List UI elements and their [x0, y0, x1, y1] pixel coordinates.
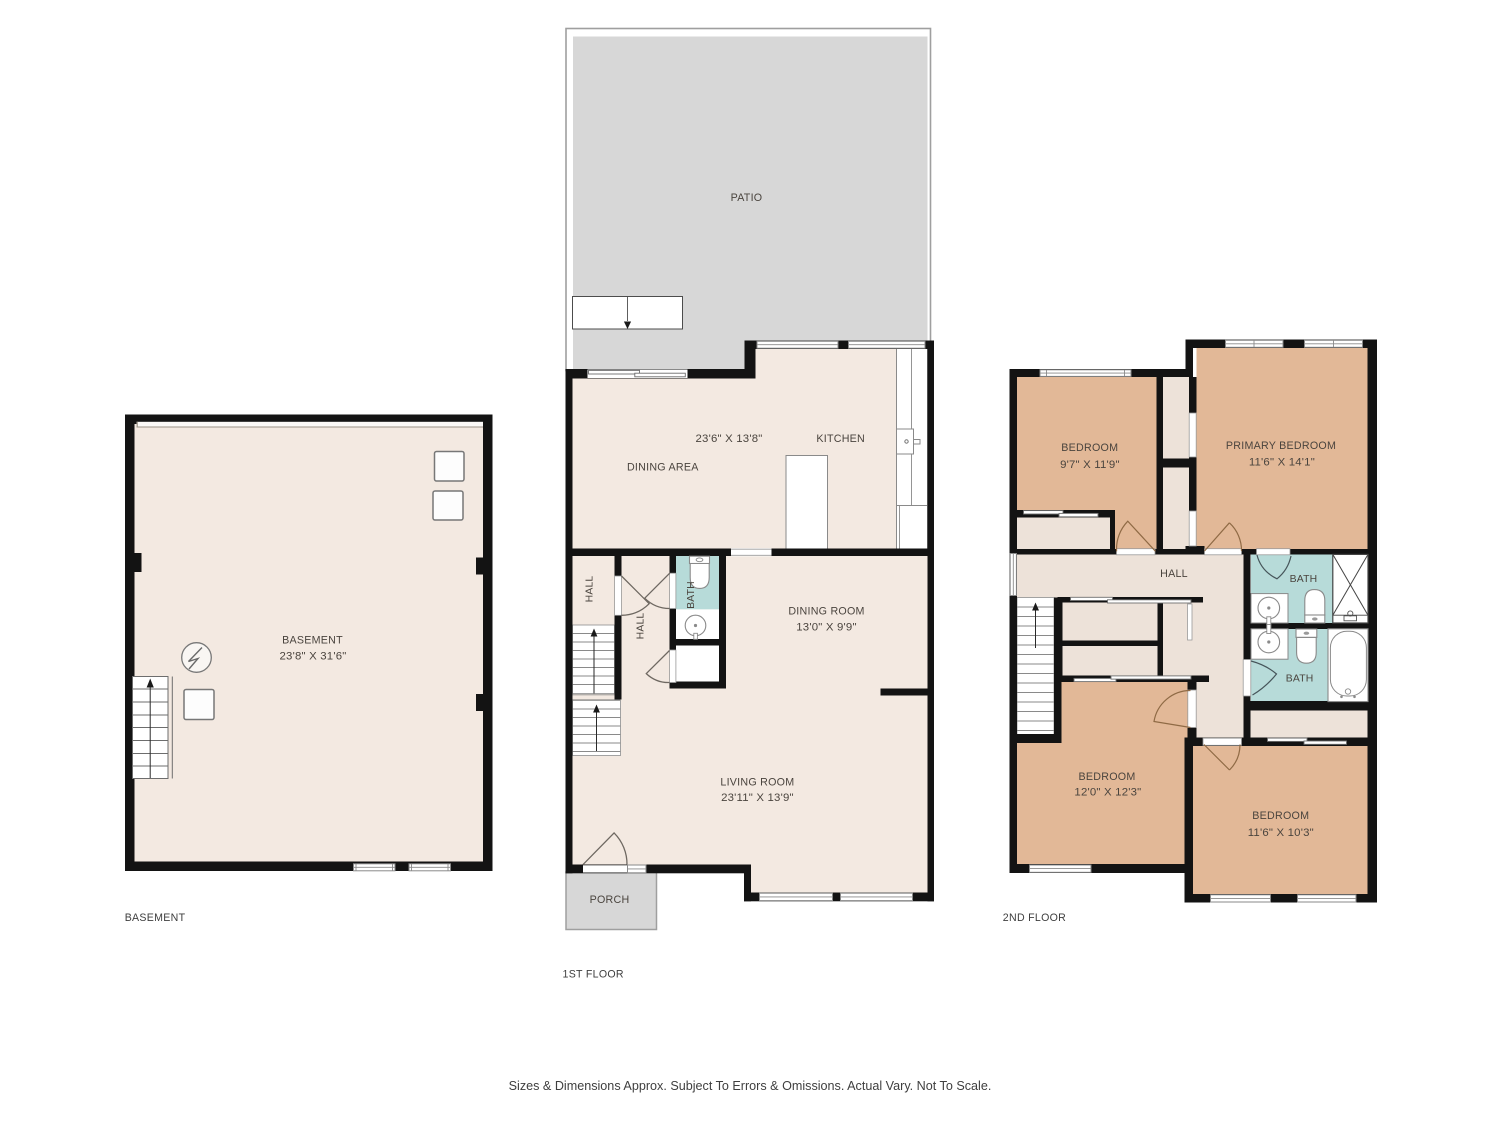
svg-text:BASEMENT: BASEMENT: [282, 634, 343, 646]
svg-text:BEDROOM: BEDROOM: [1252, 810, 1309, 822]
svg-text:HALL: HALL: [636, 613, 647, 640]
svg-text:12'0" X 12'3": 12'0" X 12'3": [1074, 787, 1141, 799]
svg-text:PORCH: PORCH: [590, 894, 630, 906]
svg-text:23'11" X 13'9": 23'11" X 13'9": [721, 792, 794, 804]
svg-text:23'8" X 31'6": 23'8" X 31'6": [280, 650, 347, 662]
svg-text:KITCHEN: KITCHEN: [816, 433, 865, 445]
svg-text:Sizes & Dimensions Approx. Sub: Sizes & Dimensions Approx. Subject To Er…: [509, 1079, 992, 1093]
svg-text:BEDROOM: BEDROOM: [1079, 771, 1136, 783]
svg-text:BATH: BATH: [686, 581, 697, 609]
svg-text:HALL: HALL: [585, 576, 596, 603]
svg-text:DINING AREA: DINING AREA: [627, 461, 699, 473]
svg-text:1ST FLOOR: 1ST FLOOR: [563, 969, 624, 981]
svg-text:BEDROOM: BEDROOM: [1061, 442, 1118, 454]
svg-text:PRIMARY BEDROOM: PRIMARY BEDROOM: [1226, 440, 1336, 452]
svg-text:13'0" X 9'9": 13'0" X 9'9": [796, 621, 856, 633]
svg-text:11'6" X 10'3": 11'6" X 10'3": [1248, 827, 1314, 839]
svg-text:23'6" X 13'8": 23'6" X 13'8": [696, 433, 763, 445]
svg-text:BATH: BATH: [1286, 673, 1314, 684]
svg-text:9'7" X 11'9": 9'7" X 11'9": [1060, 459, 1120, 471]
svg-text:11'6" X 14'1": 11'6" X 14'1": [1249, 457, 1315, 469]
svg-text:2ND FLOOR: 2ND FLOOR: [1003, 912, 1066, 924]
svg-text:BATH: BATH: [1290, 574, 1318, 585]
svg-text:BASEMENT: BASEMENT: [125, 912, 186, 924]
svg-text:HALL: HALL: [1160, 568, 1188, 580]
svg-text:PATIO: PATIO: [731, 192, 763, 204]
svg-text:DINING ROOM: DINING ROOM: [788, 605, 864, 617]
svg-text:LIVING ROOM: LIVING ROOM: [720, 776, 794, 788]
